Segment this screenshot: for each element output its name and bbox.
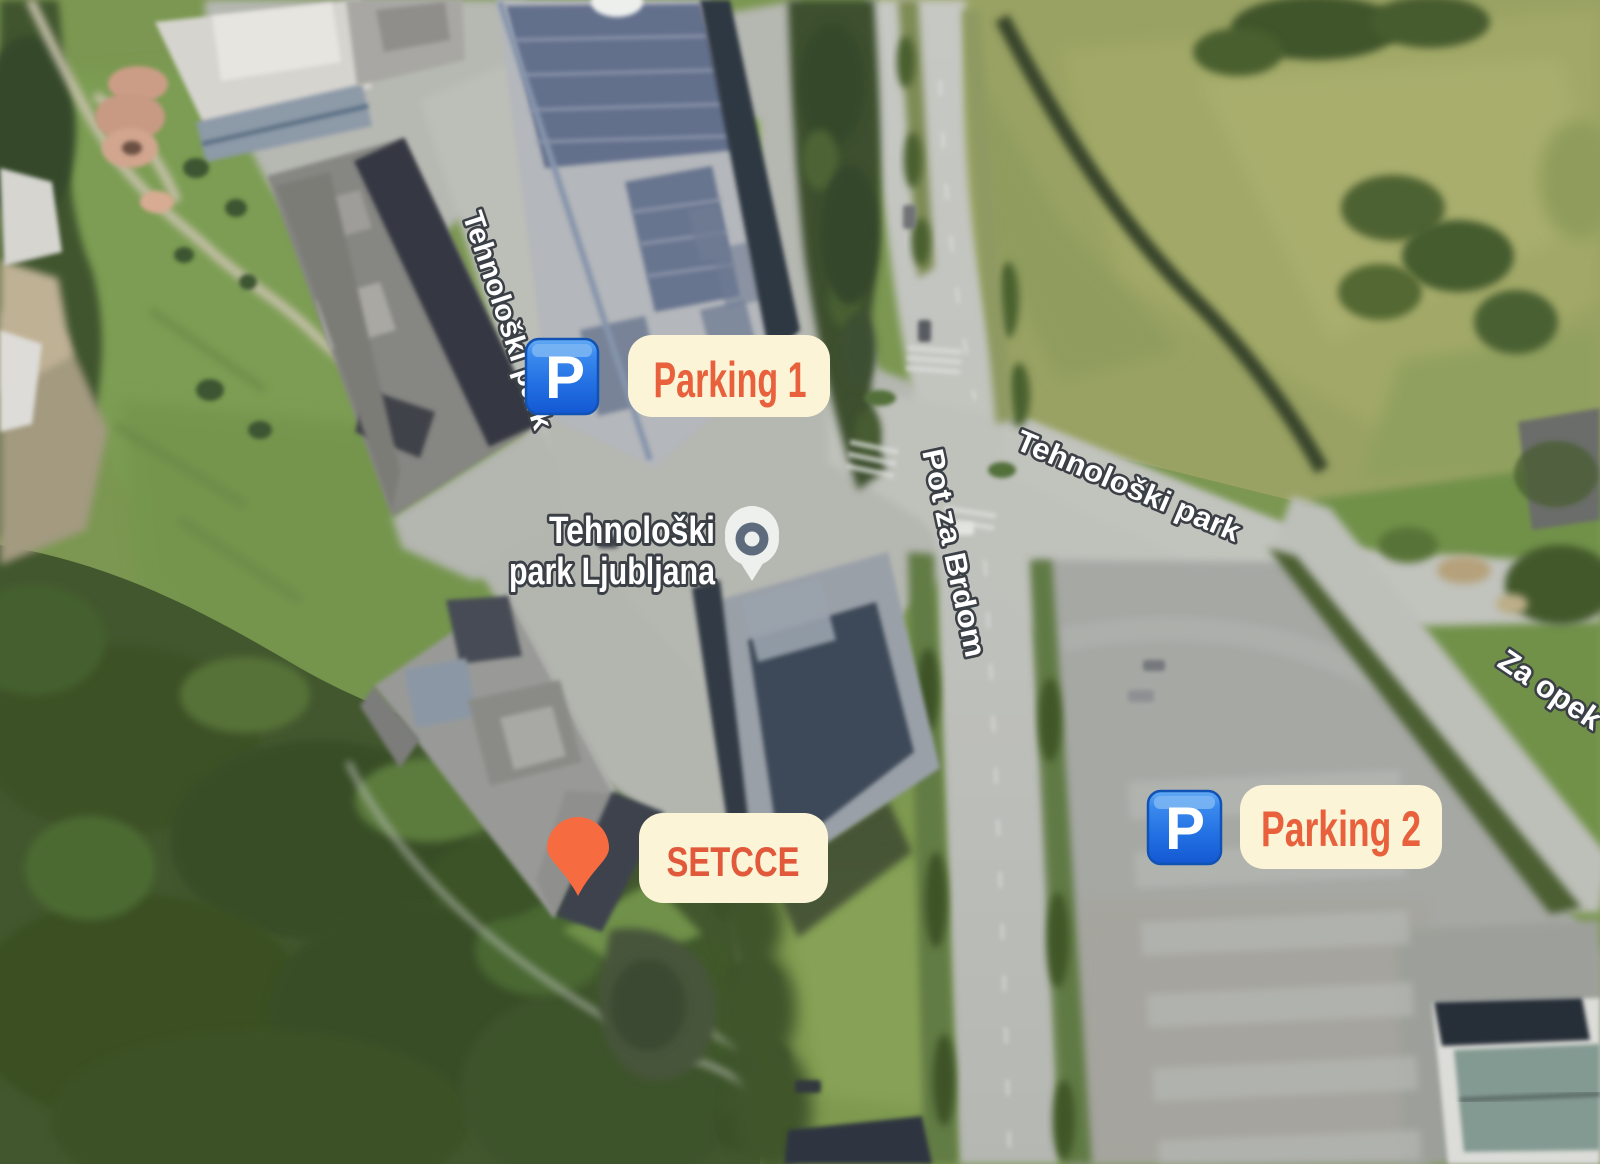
- svg-text:SETCCE: SETCCE: [667, 838, 800, 885]
- svg-text:Parking 2: Parking 2: [1261, 801, 1421, 857]
- svg-text:park Ljubljana: park Ljubljana: [509, 551, 716, 593]
- svg-text:Tehnološki: Tehnološki: [549, 510, 715, 552]
- svg-text:P: P: [1165, 795, 1205, 862]
- svg-text:Parking 1: Parking 1: [654, 352, 807, 408]
- svg-text:P: P: [545, 344, 585, 411]
